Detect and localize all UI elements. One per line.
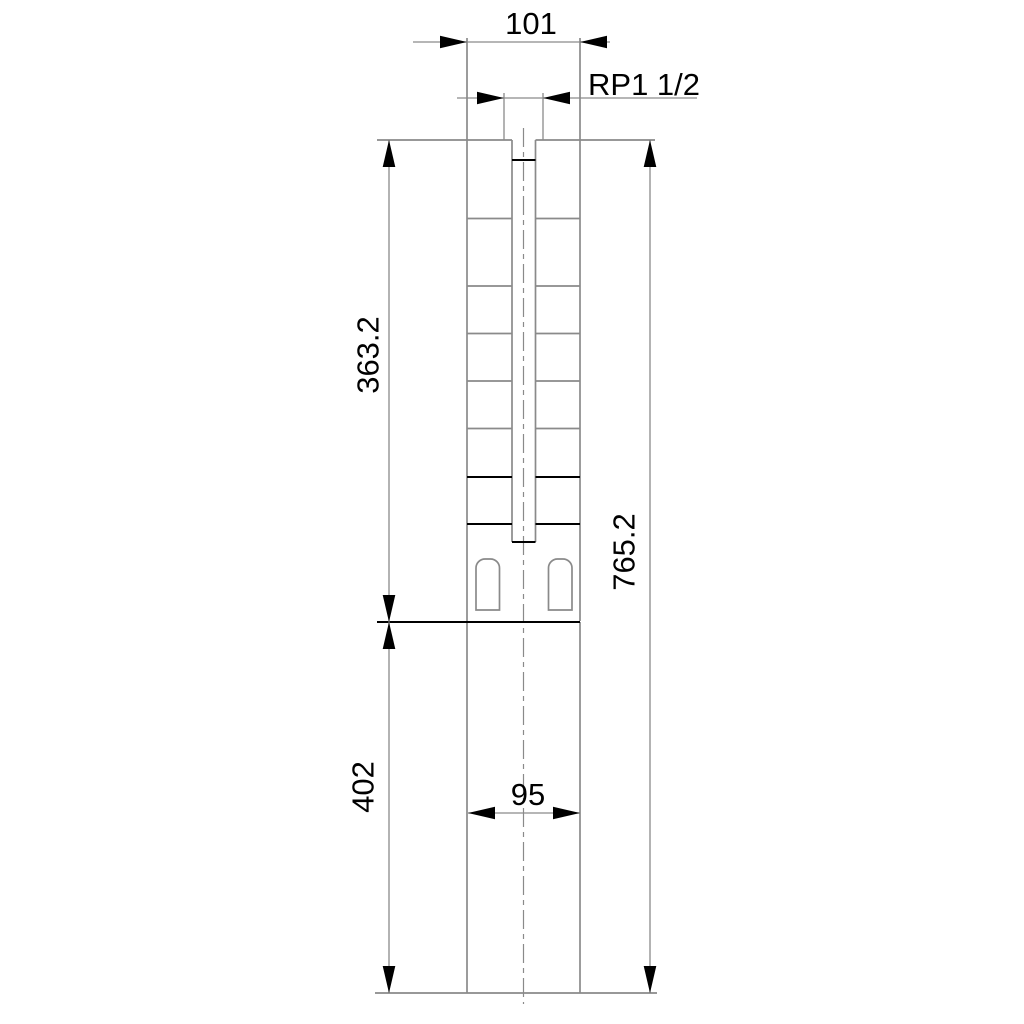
arrowhead-up-icon bbox=[644, 140, 657, 167]
arrowhead-down-icon bbox=[383, 595, 396, 622]
arrowhead-down-icon bbox=[383, 966, 396, 993]
drawing-canvas: 101 RP1 1/2 363.2 402 765.2 95 bbox=[0, 0, 1024, 1024]
dimension-total-length: 765.2 bbox=[607, 140, 657, 993]
pump-dimension-drawing: 101 RP1 1/2 363.2 402 765.2 95 bbox=[0, 0, 1024, 1024]
arrowhead-right-icon bbox=[477, 92, 504, 105]
dim-label-thread: RP1 1/2 bbox=[588, 67, 700, 102]
dim-label-motor-length: 402 bbox=[346, 761, 381, 813]
dimension-left-lengths: 363.2 402 bbox=[346, 140, 396, 993]
dim-label-top-width: 101 bbox=[505, 6, 557, 41]
dim-label-total-length: 765.2 bbox=[607, 513, 642, 591]
arrowhead-down-icon bbox=[644, 966, 657, 993]
dim-label-pump-length: 363.2 bbox=[351, 316, 386, 394]
arrowhead-left-icon bbox=[468, 807, 495, 820]
arrowhead-left-icon bbox=[580, 36, 607, 49]
dimension-thread: RP1 1/2 bbox=[457, 67, 700, 104]
suction-slot-right bbox=[549, 559, 573, 610]
suction-slot-left bbox=[476, 559, 500, 610]
dimension-top-width: 101 bbox=[413, 6, 610, 48]
arrowhead-left-icon bbox=[543, 92, 570, 105]
arrowhead-right-icon bbox=[440, 36, 467, 49]
arrowhead-up-icon bbox=[383, 622, 396, 649]
arrowhead-up-icon bbox=[383, 140, 396, 167]
arrowhead-right-icon bbox=[553, 807, 580, 820]
dim-label-motor-width: 95 bbox=[511, 777, 545, 812]
dimension-motor-width: 95 bbox=[468, 777, 580, 819]
